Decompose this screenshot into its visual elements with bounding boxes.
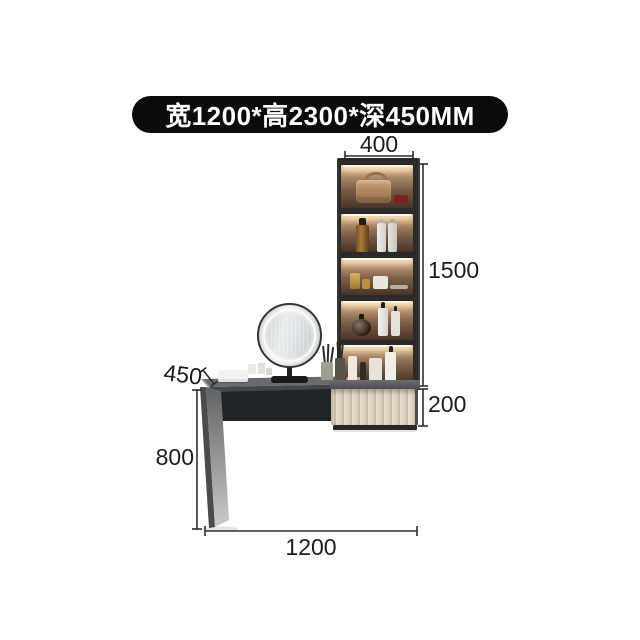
shelf-item-white-bottle bbox=[377, 223, 386, 252]
brush-cup bbox=[321, 362, 333, 380]
shelf-item-white-tube bbox=[369, 358, 382, 381]
brush-cup bbox=[335, 358, 345, 380]
dim-label-total-width: 1200 bbox=[271, 536, 351, 559]
desk-apron bbox=[212, 389, 331, 421]
shelf-item-red-box bbox=[394, 195, 408, 203]
shelf-led-strip bbox=[343, 301, 411, 303]
cabinet-shelf-3 bbox=[341, 258, 413, 295]
shelf-item-gold-bottle bbox=[350, 273, 360, 289]
dim-label-drawer-height: 200 bbox=[428, 393, 466, 416]
desk-item-white-tray bbox=[218, 370, 248, 382]
shelf-item-amber-perfume bbox=[356, 225, 369, 252]
shelf-item-pump-bottle bbox=[378, 308, 388, 336]
shelf-item-pump-bottle bbox=[391, 311, 400, 336]
mirror-base bbox=[271, 376, 308, 383]
shelf-item-white-bottle bbox=[388, 223, 397, 252]
shelf-led-strip bbox=[343, 165, 411, 167]
dim-line-drawer-height bbox=[418, 389, 428, 426]
shelf-item-white-box bbox=[373, 276, 388, 289]
drawer-plinth bbox=[333, 425, 417, 430]
desk-item-jar bbox=[258, 363, 265, 374]
shelf-led-strip bbox=[343, 214, 411, 216]
counter-top bbox=[330, 380, 420, 389]
cabinet-shelf-1 bbox=[341, 165, 413, 208]
shelf-item-round-perfume bbox=[352, 319, 371, 336]
cabinet-shelf-2 bbox=[341, 214, 413, 252]
shelf-led-strip bbox=[343, 258, 411, 260]
dim-label-desk-height: 800 bbox=[152, 446, 194, 469]
shelf-led-strip bbox=[343, 345, 411, 347]
mirror-led-ring bbox=[263, 309, 316, 362]
shelf-item-gold-jar bbox=[362, 279, 370, 289]
dim-label-cabinet-height: 1500 bbox=[428, 259, 479, 282]
shelf-item-white-bottle bbox=[348, 356, 357, 381]
cabinet-shelf-5 bbox=[341, 345, 413, 382]
dim-label-cabinet-width: 400 bbox=[347, 133, 411, 156]
shelf-item-handbag bbox=[356, 180, 391, 203]
dim-label-desk-depth: 450 bbox=[155, 360, 203, 388]
desk-item-jar bbox=[248, 364, 256, 374]
product-dimension-image: 宽1200*高2300*深450MM bbox=[0, 0, 640, 640]
wall-cabinet bbox=[337, 158, 420, 382]
shelf-item-tray bbox=[390, 285, 408, 289]
cabinet-shelf-4 bbox=[341, 301, 413, 340]
drawer-unit bbox=[331, 389, 418, 425]
shelf-item-dark-bottle bbox=[360, 362, 366, 381]
desk-item-jar bbox=[266, 368, 272, 375]
led-mirror bbox=[257, 303, 322, 368]
shelf-item-pump-bottle bbox=[385, 352, 396, 381]
